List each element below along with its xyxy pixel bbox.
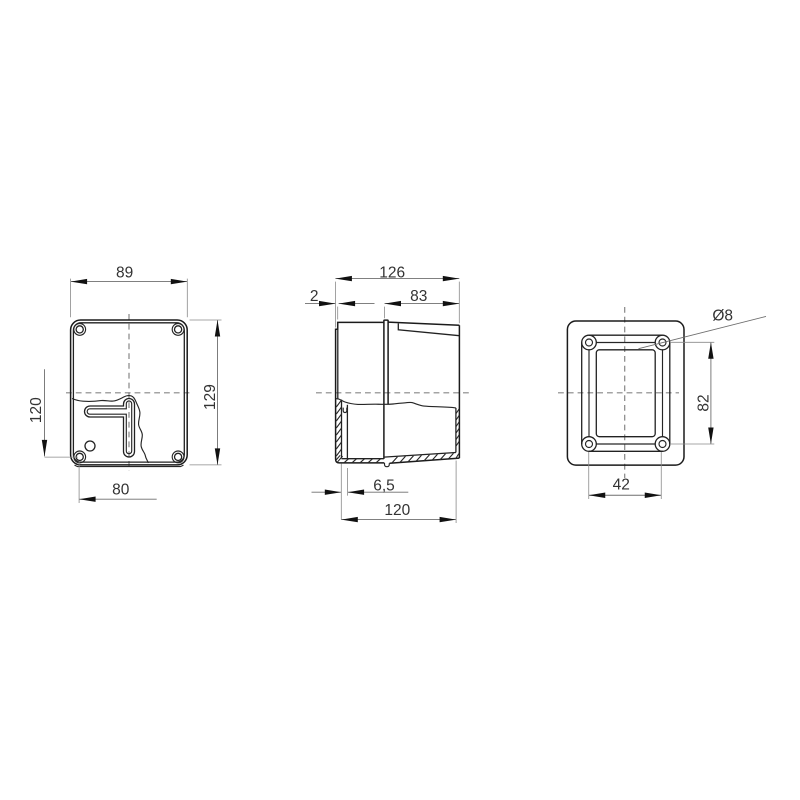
svg-text:Ø8: Ø8 — [712, 308, 733, 325]
svg-text:120: 120 — [384, 502, 410, 519]
svg-text:129: 129 — [202, 384, 219, 410]
svg-text:83: 83 — [410, 288, 427, 305]
svg-text:6,5: 6,5 — [373, 477, 395, 494]
svg-text:82: 82 — [695, 394, 712, 411]
svg-text:126: 126 — [379, 264, 405, 281]
svg-text:42: 42 — [613, 477, 630, 494]
svg-text:89: 89 — [116, 265, 133, 282]
svg-text:2: 2 — [310, 288, 319, 305]
svg-text:120: 120 — [28, 397, 45, 423]
svg-text:80: 80 — [112, 481, 130, 498]
